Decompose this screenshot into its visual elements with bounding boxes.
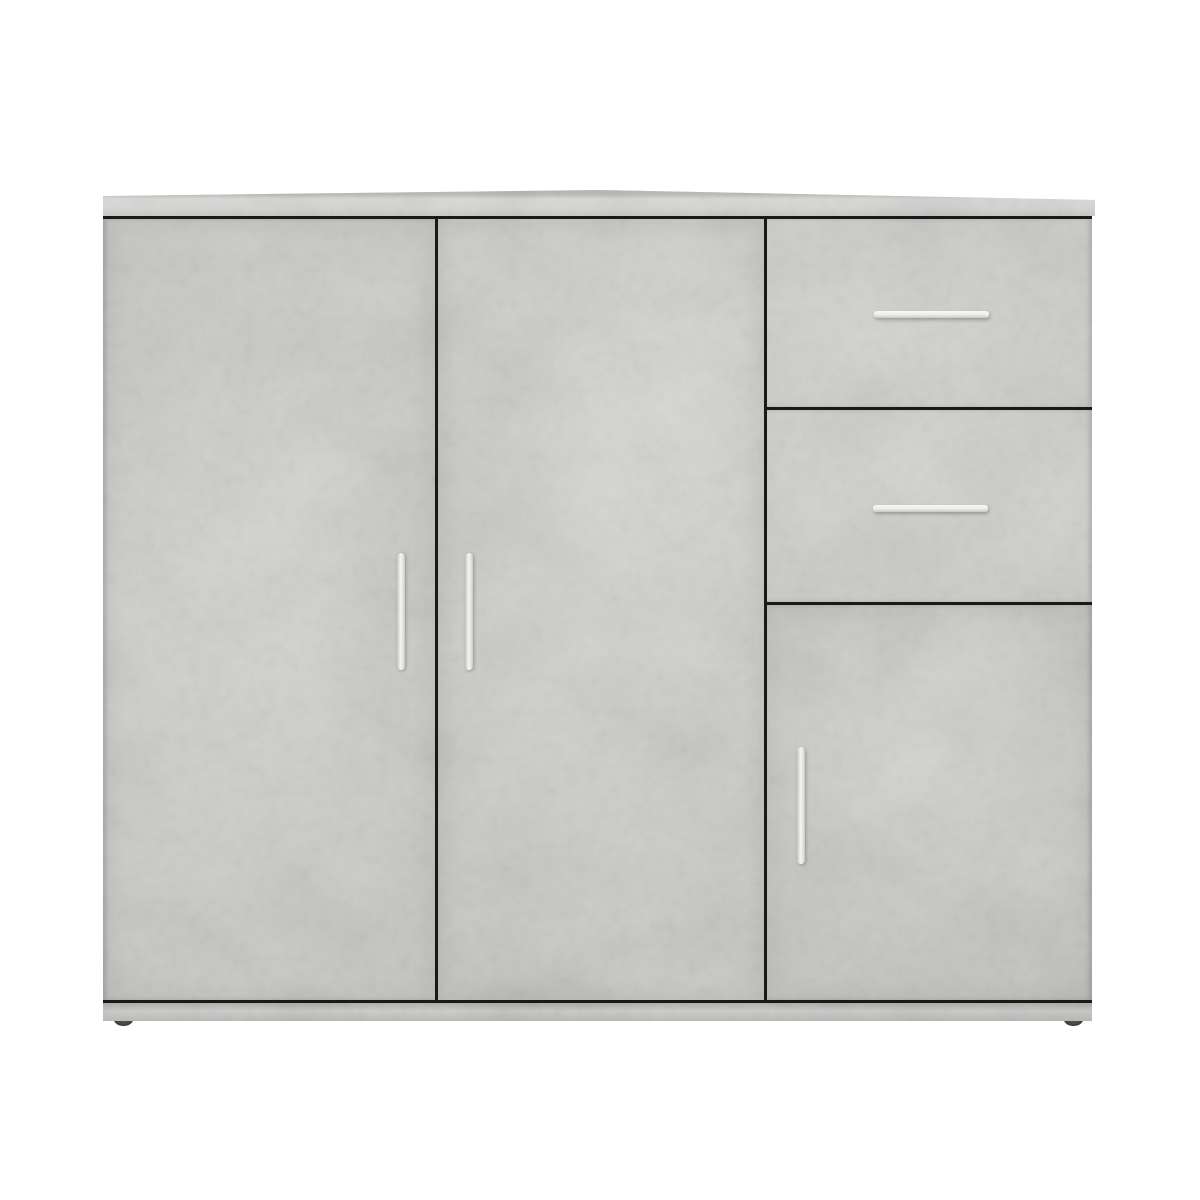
bottom-door-handle: [797, 747, 805, 864]
bottom-right-door: [767, 605, 1092, 1000]
middle-door: [438, 219, 764, 1000]
cabinet-top-board: [100, 185, 1097, 216]
top-drawer-handle: [874, 311, 989, 318]
base-plinth: [103, 1003, 1092, 1021]
product-image: [0, 0, 1200, 1200]
middle-door-handle: [465, 553, 473, 670]
middle-drawer-handle: [873, 505, 988, 512]
left-door: [103, 219, 435, 1000]
left-door-handle: [397, 553, 405, 670]
sideboard-cabinet: [100, 185, 1097, 1021]
